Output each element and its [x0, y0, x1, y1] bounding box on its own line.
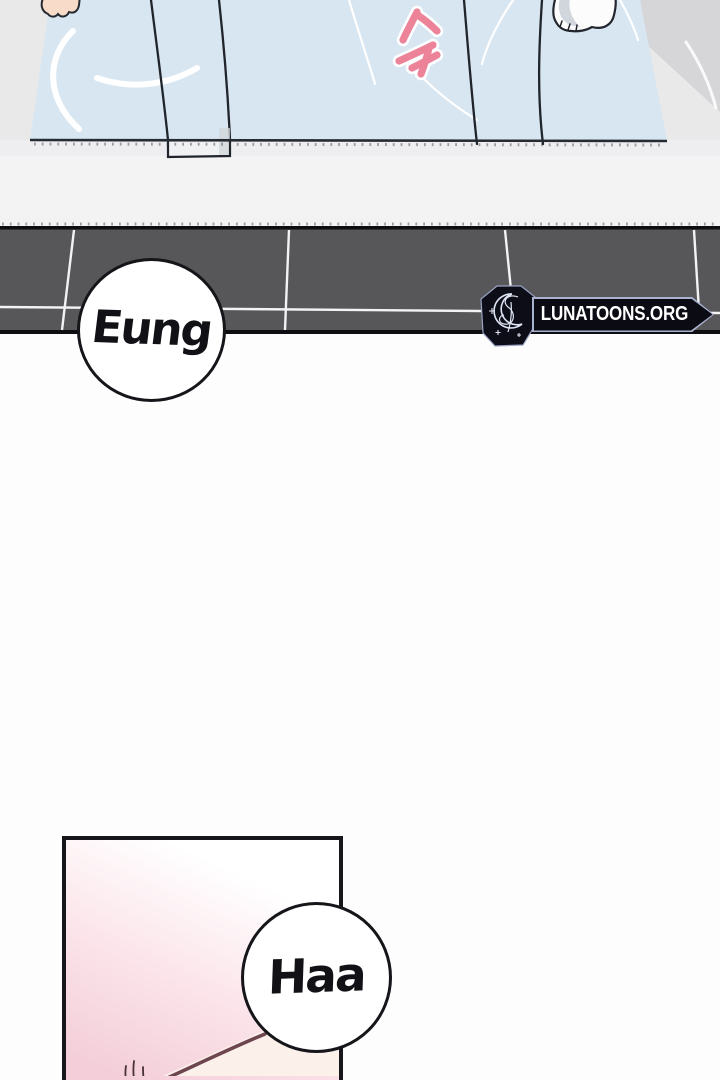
speech-bubble-haa-text: Haa: [267, 947, 366, 1005]
lunatoons-logo-icon: [478, 284, 540, 348]
foot-right: [553, 0, 615, 31]
speech-bubble-haa: Haa: [241, 902, 392, 1053]
speech-bubble-eung: Eung: [77, 258, 226, 402]
watermark-text: LUNATOONS.ORG: [534, 303, 688, 326]
watermark-banner: LUNATOONS.ORG: [532, 297, 714, 332]
speech-bubble-eung-text: Eung: [89, 300, 214, 357]
lunatoons-watermark: LUNATOONS.ORG: [478, 282, 718, 348]
hair-strokes: [125, 1061, 145, 1076]
comic-page: Eung LUNATOONS.ORG Haa: [0, 0, 720, 1080]
